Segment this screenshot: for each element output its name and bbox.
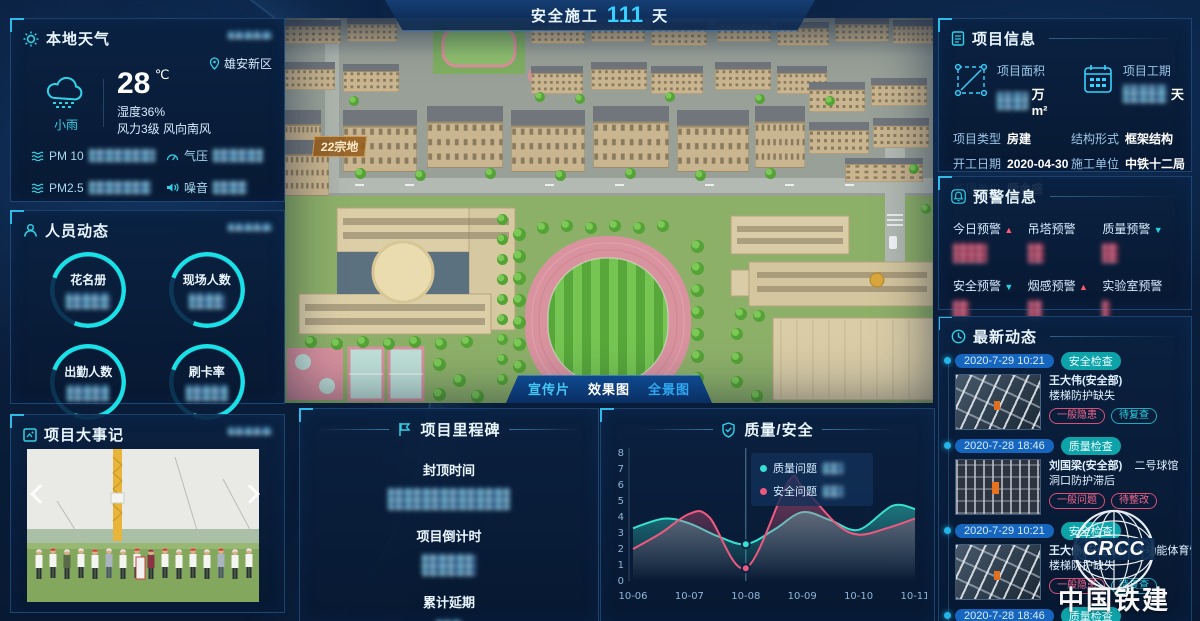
milestone-label: 累计延期: [423, 592, 475, 611]
inspection-photo: [955, 459, 1041, 515]
view-switch-bar: 宣传片 效果图 全景图: [506, 375, 712, 403]
status-tag: 待复查: [1111, 408, 1157, 424]
field-project-type: 项目类型房建: [953, 130, 1071, 147]
svg-text:10-09: 10-09: [788, 591, 817, 602]
panel-title: 项目信息: [972, 28, 1036, 49]
condition-label: 小雨: [37, 116, 95, 133]
header-title-prefix: 安全施工: [531, 5, 599, 26]
warning-safety: 安全预警 ▼: [953, 277, 1028, 320]
redacted-value: [388, 488, 510, 510]
project-stats: 项目面积 万m² 项目工期 天: [939, 54, 1191, 118]
plot-label: 22宗地: [312, 136, 368, 157]
date-badge: 2020-7-28 18:46: [955, 439, 1054, 453]
stat-label: 项目面积: [997, 62, 1055, 79]
chart-legend: 质量问题 安全问题: [751, 453, 873, 506]
panel-quality-safety: 质量/安全 01234567810-0610-0710-0810-0910-10…: [600, 408, 935, 621]
svg-text:4: 4: [618, 512, 624, 523]
panel-title: 最新动态: [973, 326, 1037, 347]
feed-entry[interactable]: 2020-7-29 10:21 安全检查 王大伟(安全部) 楼梯防护缺失 一般隐…: [955, 352, 1191, 430]
redacted-value: [1123, 85, 1167, 103]
svg-text:2: 2: [618, 544, 624, 555]
stat-area: 项目面积 万m²: [953, 62, 1055, 118]
metric-label: PM 10: [49, 149, 84, 163]
timeline-dot: [944, 442, 951, 449]
flag-icon: [397, 422, 412, 437]
rain-cloud-icon: [42, 75, 90, 109]
redacted-value: [67, 385, 109, 401]
panel-title: 质量/安全: [744, 419, 813, 440]
location-pin-icon: [209, 57, 220, 70]
redacted-value: [89, 149, 155, 162]
temperature-value: 28: [117, 67, 150, 100]
redacted-value: [1028, 243, 1044, 263]
header-deco: [228, 31, 272, 39]
field-start-date: 开工日期2020-04-30: [953, 155, 1071, 172]
view-button-promo[interactable]: 宣传片: [528, 379, 570, 398]
city-3d-view: 22宗地 宣传片 效果图 全景图: [285, 18, 933, 403]
header-deco: [228, 223, 272, 231]
haze-icon: [31, 183, 44, 193]
redacted-value: [89, 181, 151, 194]
view-button-render[interactable]: 效果图: [588, 379, 630, 398]
group-photo: [27, 449, 259, 602]
temperature: 28 ℃: [117, 67, 169, 101]
panel-title: 项目大事记: [44, 424, 124, 445]
shield-check-icon: [721, 422, 736, 438]
crcc-name: 中国铁建: [1030, 580, 1198, 617]
gauge-onsite: 现场人数: [169, 252, 245, 328]
crcc-logo: CRCC 中国铁建: [1030, 507, 1198, 617]
metric-pm10: PM 10: [31, 147, 166, 164]
redacted-value: [1102, 243, 1118, 263]
area-icon: [953, 62, 989, 98]
warning-smoke: 烟感预警 ▲: [1028, 277, 1103, 320]
type-badge: 安全检查: [1061, 352, 1121, 370]
location-badge: 雄安新区: [209, 55, 272, 72]
gauge-swipe-rate: 刷卡率: [169, 344, 245, 420]
redacted-value: [422, 554, 476, 576]
warning-lab: 实验室预警: [1102, 277, 1177, 320]
field-structure: 结构形式框架结构: [1071, 130, 1185, 147]
gauge-label: 花名册: [70, 271, 106, 288]
person-icon: [23, 223, 38, 238]
gauge-label: 现场人数: [183, 271, 231, 288]
redacted-value: [997, 92, 1028, 110]
type-badge: 质量检查: [1061, 437, 1121, 455]
gauge-attendance: 出勤人数: [50, 344, 126, 420]
header-title-suffix: 天: [652, 5, 669, 26]
header-rule: [1050, 196, 1179, 197]
sun-gear-icon: [23, 31, 39, 47]
metric-label: 噪音: [184, 179, 208, 196]
legend-safety: 安全问题: [760, 483, 864, 499]
legend-label: 质量问题: [773, 460, 817, 476]
legend-label: 安全问题: [773, 483, 817, 499]
metric-pm25: PM2.5: [31, 179, 166, 196]
divider: [103, 79, 104, 127]
milestone-items: 封顶时间 项目倒计时 累计延期: [300, 444, 598, 621]
timeline-dot: [944, 357, 951, 364]
panel-title: 人员动态: [45, 220, 109, 241]
air-metrics: PM 10 气压 PM2.5 噪音: [31, 147, 274, 196]
document-icon: [951, 31, 965, 46]
svg-text:7: 7: [618, 464, 624, 475]
svg-text:CRCC: CRCC: [1083, 538, 1145, 560]
warning-today: 今日预警 ▲: [953, 220, 1028, 263]
svg-text:8: 8: [618, 448, 624, 459]
svg-text:10-10: 10-10: [844, 591, 873, 602]
header-rule: [1050, 336, 1179, 337]
trend-up-icon: ▲: [1079, 282, 1088, 292]
svg-text:10-11: 10-11: [900, 591, 927, 602]
timeline-dot: [944, 612, 951, 619]
svg-text:1: 1: [618, 560, 624, 571]
panel-title: 项目里程碑: [420, 419, 500, 440]
pressure-icon: [166, 151, 179, 161]
header-days-count: 111: [607, 2, 644, 28]
svg-text:10-08: 10-08: [731, 591, 760, 602]
inspector-name: 王大伟(安全部): [1049, 375, 1122, 387]
panel-title: 本地天气: [46, 28, 110, 49]
panel-personnel: 人员动态 花名册 现场人数 出勤人数 刷卡率: [10, 210, 285, 404]
gauge-label: 出勤人数: [64, 363, 112, 380]
inspection-photo: [955, 544, 1041, 600]
stat-duration: 项目工期 天: [1081, 62, 1184, 118]
city-render: [285, 18, 933, 403]
stat-unit: 万m²: [1032, 84, 1055, 118]
humidity-label: 湿度36%: [117, 103, 165, 120]
svg-text:5: 5: [618, 496, 624, 507]
metric-label: 气压: [184, 147, 208, 164]
trend-down-icon: ▼: [1004, 282, 1013, 292]
svg-text:0: 0: [618, 576, 624, 587]
trend-down-icon: ▼: [1154, 225, 1163, 235]
weather-condition: 小雨: [37, 75, 95, 133]
redacted-value: [953, 243, 987, 263]
panel-weather: 本地天气 雄安新区 小雨 28 ℃ 湿度36% 风力3级 风向南风 PM 10: [10, 18, 285, 202]
location-name: 二号球馆: [1134, 460, 1178, 472]
timeline-line: [948, 359, 949, 621]
panel-project-events: 项目大事记: [10, 414, 285, 613]
inspection-photo: [955, 374, 1041, 430]
svg-text:10-07: 10-07: [675, 591, 704, 602]
redacted-value: [186, 385, 228, 401]
location-label: 雄安新区: [224, 55, 272, 72]
stat-label: 项目工期: [1123, 62, 1184, 79]
redacted-value: [823, 463, 843, 474]
redacted-value: [213, 149, 263, 162]
redacted-value: [189, 293, 225, 309]
panel-milestone: 项目里程碑 封顶时间 项目倒计时 累计延期: [299, 408, 599, 621]
calendar-icon: [1081, 62, 1115, 96]
issue-text: 楼梯防护缺失: [1049, 389, 1157, 404]
clock-icon: [951, 329, 966, 344]
svg-text:6: 6: [618, 480, 624, 491]
temperature-unit: ℃: [155, 67, 170, 82]
issue-text: 洞口防护滞后: [1049, 474, 1178, 489]
haze-icon: [31, 151, 44, 161]
panel-project-info: 项目信息 项目面积 万m² 项目工期 天: [938, 18, 1192, 172]
panel-warnings: 预警信息 今日预警 ▲ 吊塔预警 质量预警 ▼ 安全预警 ▼ 烟感预警 ▲: [938, 176, 1192, 310]
severity-tag: 一般隐患: [1049, 408, 1105, 424]
metric-noise: 噪音: [166, 179, 274, 196]
gauge-roster: 花名册: [50, 252, 126, 328]
noise-speaker-icon: [166, 182, 179, 193]
warning-grid: 今日预警 ▲ 吊塔预警 质量预警 ▼ 安全预警 ▼ 烟感预警 ▲ 实验室预警: [939, 212, 1191, 320]
milestone-label: 封顶时间: [423, 460, 475, 479]
dashboard: 22宗地 宣传片 效果图 全景图 安全施工 111 天 本地天气 雄安新区: [0, 0, 1200, 621]
warning-quality: 质量预警 ▼: [1102, 220, 1177, 263]
feed-entry[interactable]: 2020-7-28 18:46 质量检查 刘国梁(安全部)二号球馆 洞口防护滞后…: [955, 437, 1191, 515]
metric-pressure: 气压: [166, 147, 274, 164]
header-rule: [1049, 38, 1179, 39]
redacted-value: [66, 293, 110, 309]
trend-up-icon: ▲: [1004, 225, 1013, 235]
gauge-grid: 花名册 现场人数 出勤人数 刷卡率: [11, 246, 284, 420]
field-contractor: 施工单位中铁十二局: [1071, 155, 1185, 172]
page-header: 安全施工 111 天: [385, 0, 815, 31]
gauge-label: 刷卡率: [189, 363, 225, 380]
svg-text:3: 3: [618, 528, 624, 539]
stat-unit: 天: [1171, 84, 1184, 103]
metric-label: PM2.5: [49, 181, 84, 195]
timeline-dot: [944, 527, 951, 534]
quality-dot-icon: [760, 465, 767, 472]
warning-crane: 吊塔预警: [1028, 220, 1103, 263]
header-deco: [228, 427, 272, 435]
redacted-value: [213, 181, 247, 194]
photo-calendar-icon: [23, 428, 37, 442]
milestone-label: 项目倒计时: [416, 526, 481, 545]
svg-text:10-06: 10-06: [618, 591, 647, 602]
legend-quality: 质量问题: [760, 460, 864, 476]
wind-label: 风力3级 风向南风: [117, 120, 211, 137]
safety-dot-icon: [760, 488, 767, 495]
bell-icon: [951, 189, 966, 204]
redacted-value: [823, 486, 843, 497]
inspector-name: 刘国梁(安全部): [1049, 460, 1122, 472]
panel-title: 预警信息: [973, 186, 1037, 207]
view-button-panorama[interactable]: 全景图: [648, 379, 690, 398]
date-badge: 2020-7-29 10:21: [955, 354, 1054, 368]
event-photo: [27, 449, 259, 602]
